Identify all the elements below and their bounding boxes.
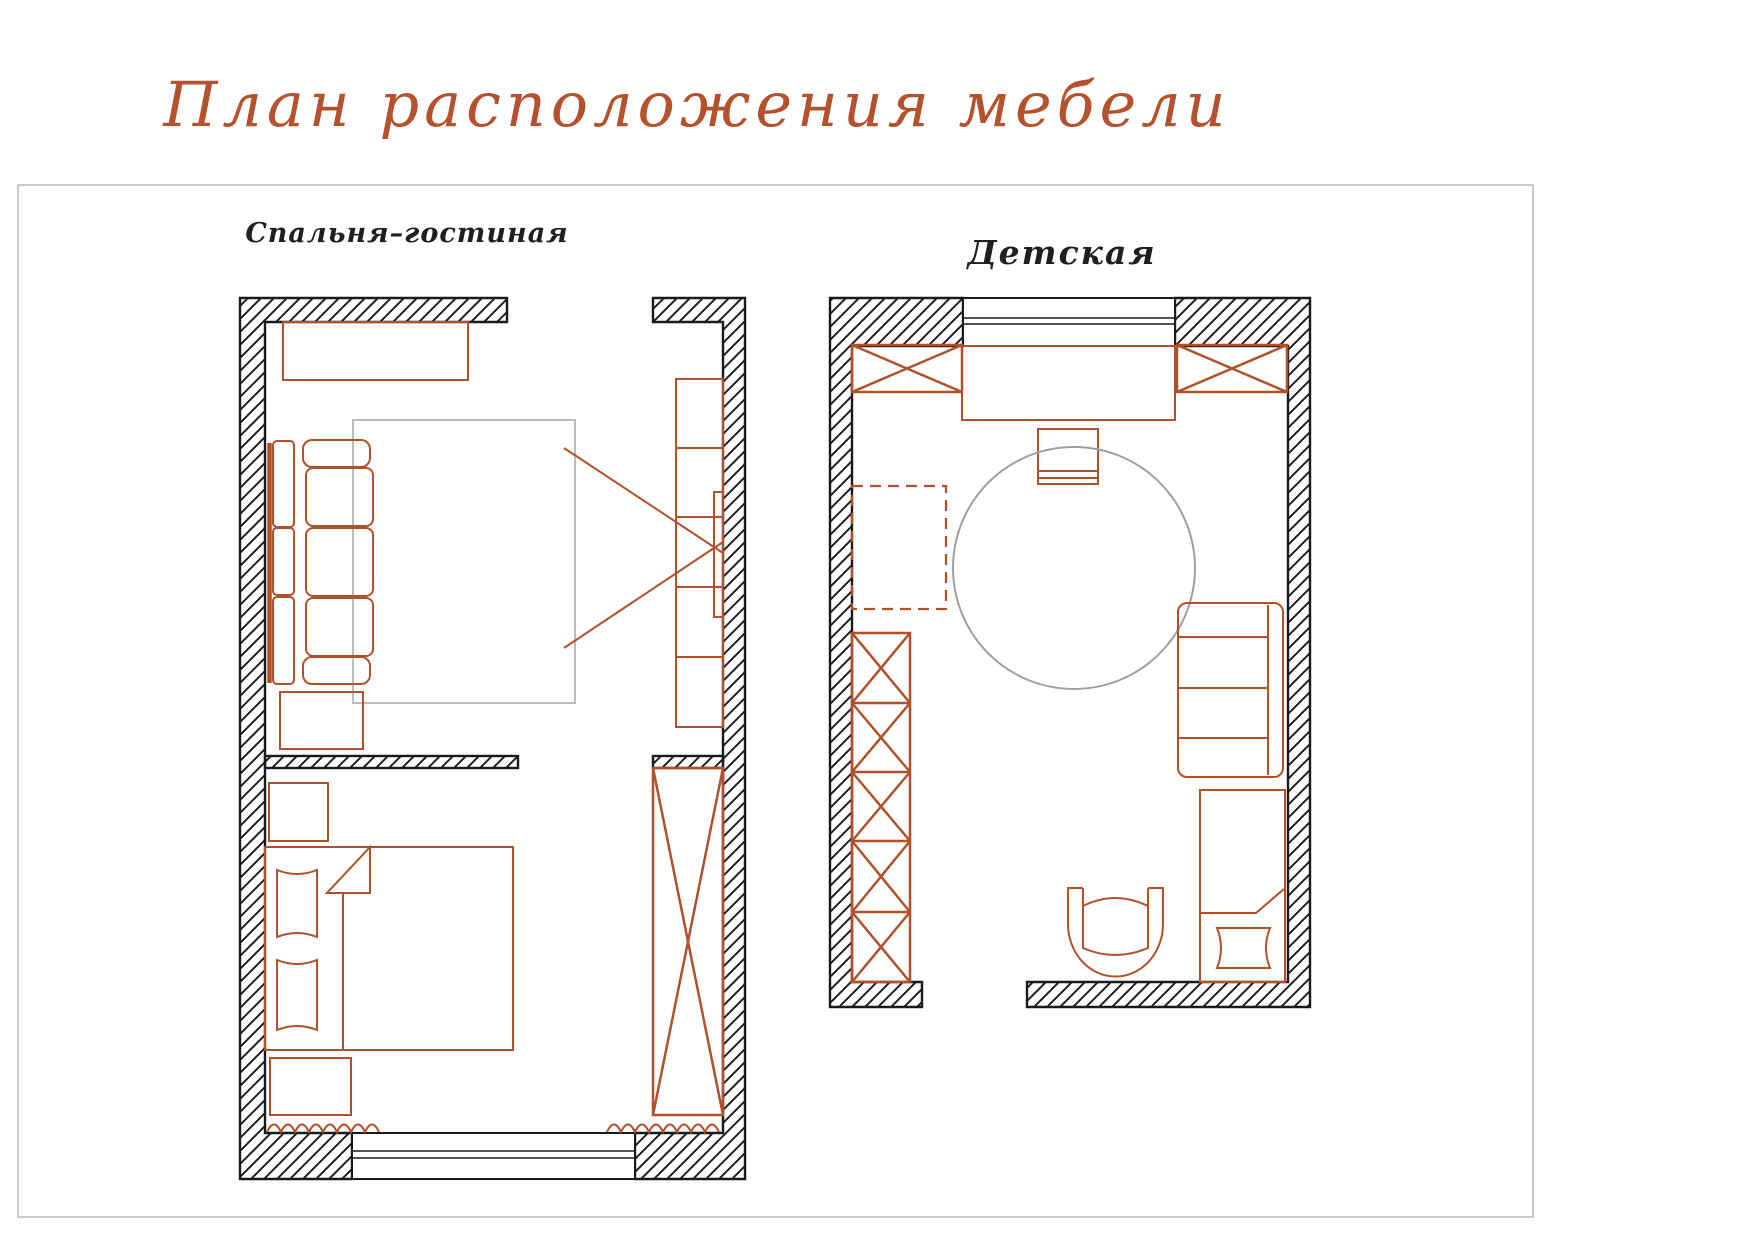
- side-table: [280, 692, 363, 749]
- kids-bed: [1200, 790, 1285, 982]
- tv-viewing-angle-lines: [564, 448, 723, 648]
- tub-chair-seat: [1083, 898, 1148, 955]
- walls-bedroom-living: [240, 298, 745, 1179]
- wall-right-top-bottom: [635, 298, 745, 1179]
- curtain-right: [607, 1125, 719, 1133]
- pillow: [277, 870, 317, 937]
- wall-left-top-bottom: [830, 298, 963, 1007]
- tv-panel: [714, 492, 723, 617]
- tub-chair: [1068, 888, 1163, 977]
- nightstand-bottom: [270, 1058, 351, 1115]
- nightstand-top: [269, 783, 328, 841]
- desk: [962, 346, 1175, 420]
- plan-bedroom-living: [240, 298, 745, 1179]
- blanket-fold: [327, 847, 370, 893]
- play-area-dashed: [852, 486, 946, 609]
- tv-stand: [283, 322, 468, 380]
- window-bottom: [352, 1133, 635, 1179]
- wall-cabinet-x-right: [1177, 345, 1287, 392]
- pillow: [277, 960, 317, 1030]
- partition-wall-right: [653, 756, 723, 768]
- wardrobe-x: [653, 768, 723, 1115]
- pillow: [1217, 928, 1270, 968]
- curtain-left: [267, 1125, 379, 1133]
- partition-wall-left: [265, 756, 518, 768]
- floor-plan-drawing: [0, 0, 1754, 1240]
- shelving-unit: [676, 379, 723, 727]
- plan-childrens: [830, 298, 1310, 1007]
- kids-sofa: [1178, 603, 1283, 777]
- sofa: [270, 440, 374, 684]
- wall-cabinet-x-left: [852, 345, 962, 392]
- window-top: [963, 298, 1175, 346]
- area-rug: [353, 420, 575, 703]
- desk-chair: [1038, 429, 1098, 484]
- double-bed: [265, 847, 513, 1050]
- shelving-x-column: [852, 633, 910, 982]
- blanket-fold: [1200, 889, 1284, 913]
